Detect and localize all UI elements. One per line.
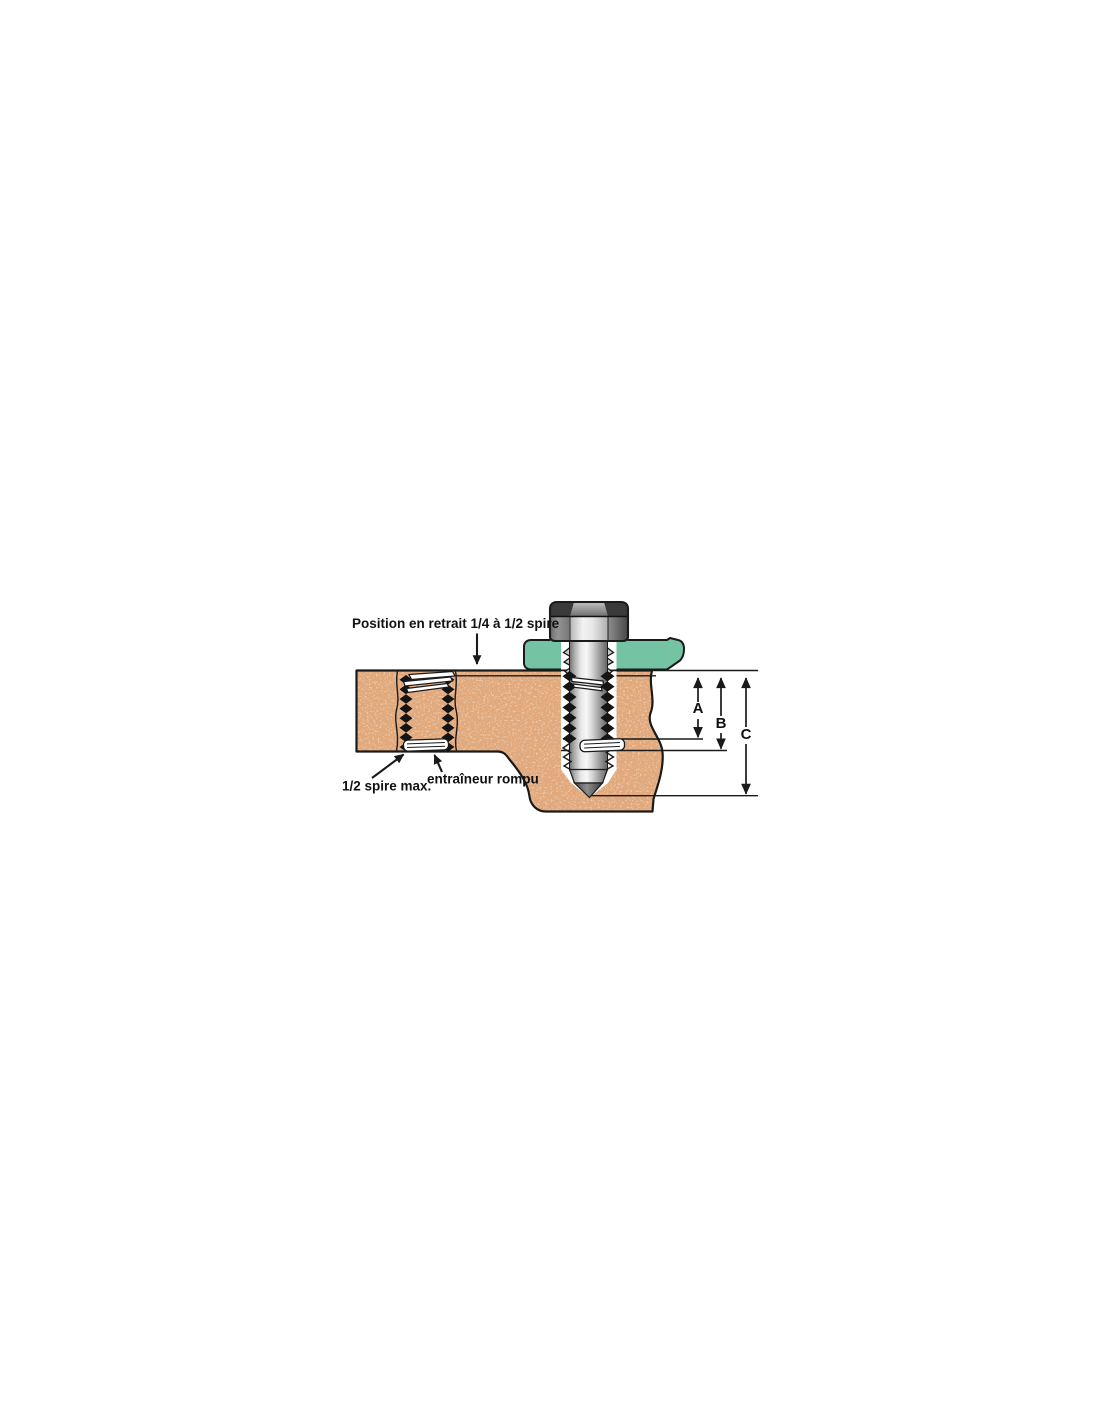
bolt-tip-chamfer bbox=[570, 770, 608, 784]
dimension-set: A B C bbox=[693, 678, 752, 794]
head-top-facet bbox=[570, 602, 608, 617]
dim-label-c: C bbox=[741, 726, 752, 743]
insert-bottom-coil-end bbox=[403, 739, 448, 752]
half-spire-label: 1/2 spire max. bbox=[342, 779, 431, 794]
head-side-faces bbox=[550, 617, 628, 642]
dim-label-a: A bbox=[693, 700, 704, 717]
broken-tang bbox=[580, 739, 625, 752]
technical-diagram-page: A B C Position en retrait 1/4 à 1/2 spir… bbox=[0, 0, 1100, 1422]
dimension-c: C bbox=[741, 678, 752, 794]
dim-label-b: B bbox=[716, 715, 727, 732]
dimension-b: B bbox=[716, 678, 727, 749]
half-spire-arrow bbox=[372, 755, 404, 779]
threaded-insert-diagram: A B C Position en retrait 1/4 à 1/2 spir… bbox=[0, 0, 1100, 1422]
dimension-a: A bbox=[693, 678, 704, 737]
position-label: Position en retrait 1/4 à 1/2 spire bbox=[352, 616, 560, 631]
tang-arrow bbox=[435, 755, 443, 772]
bolt-hex-head bbox=[550, 602, 628, 641]
tang-label: entraîneur rompu bbox=[427, 772, 539, 787]
